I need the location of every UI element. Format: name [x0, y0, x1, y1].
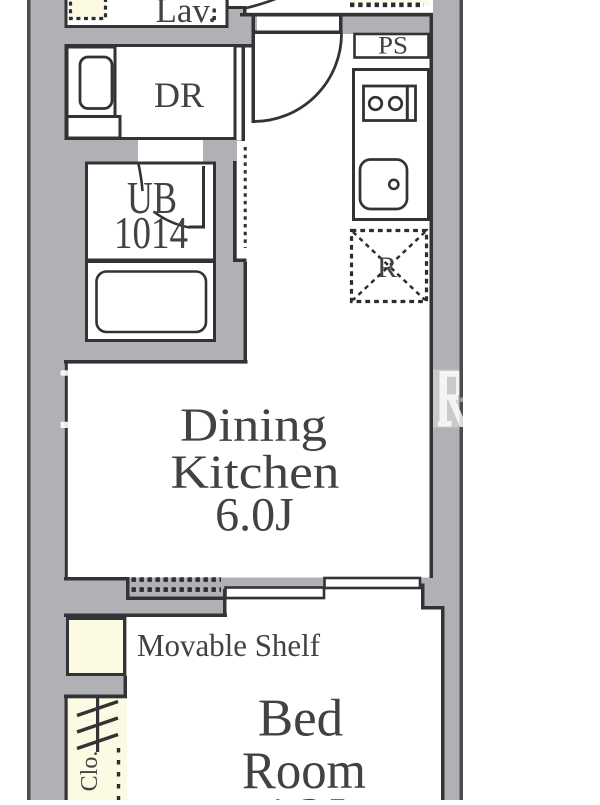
- svg-text:1014: 1014: [114, 208, 188, 258]
- svg-text:R: R: [377, 251, 397, 284]
- svg-text:Dining: Dining: [180, 399, 327, 452]
- svg-text:4.2J: 4.2J: [259, 788, 346, 800]
- svg-text:Clo.: Clo.: [77, 751, 103, 792]
- svg-text:Bed: Bed: [258, 690, 343, 748]
- svg-text:PS: PS: [378, 33, 408, 60]
- svg-text:DR: DR: [154, 75, 204, 115]
- svg-text:Movable Shelf: Movable Shelf: [137, 627, 320, 663]
- svg-text:Lav.: Lav.: [156, 0, 217, 30]
- svg-text:6.0J: 6.0J: [215, 489, 294, 542]
